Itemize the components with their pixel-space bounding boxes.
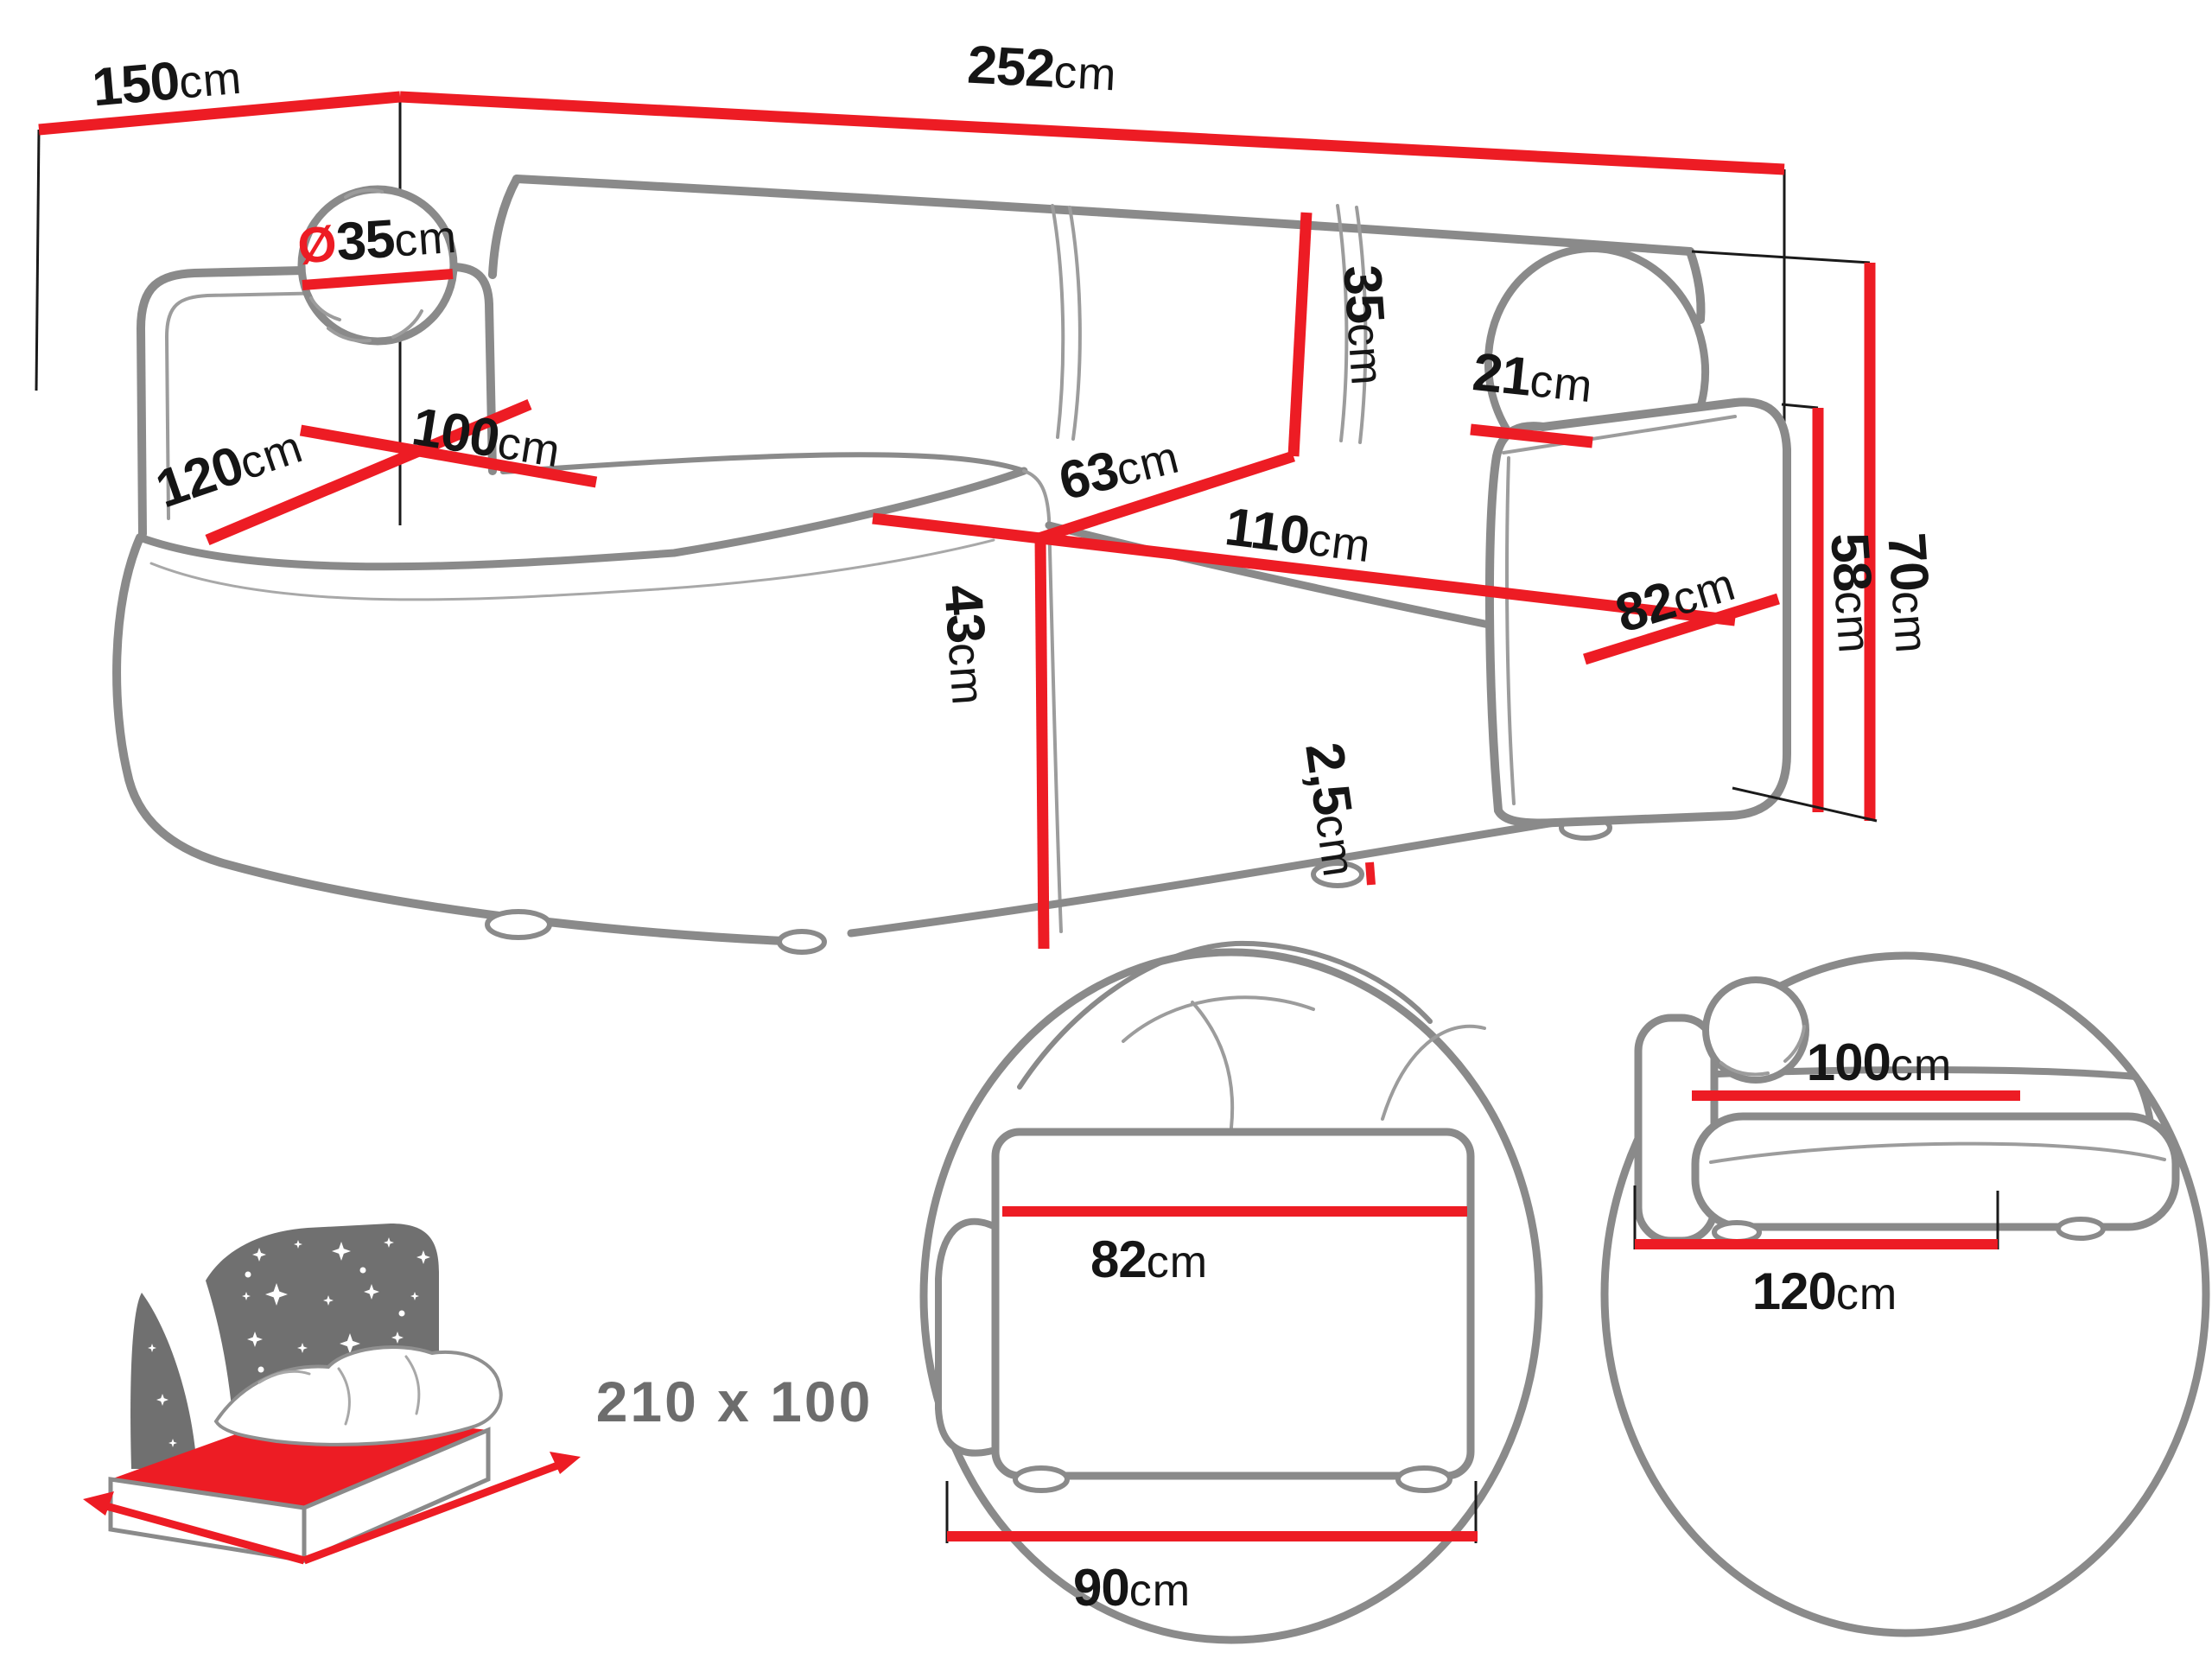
detail-side-ghost-1 [1020,944,1430,1087]
backrest-left-end [493,179,517,275]
sofa-foot-2 [779,931,824,952]
backrest-bottom-seam [503,454,1024,472]
starry-headboard-swoosh [130,1293,197,1469]
detail-side-label-82: 82cm [1090,1230,1208,1288]
backrest-cushion-seam-left-b [1070,207,1080,439]
dim-label-70: 70cm [1876,531,1944,656]
wall-edge-left-line [36,130,39,391]
detail-front-foot-1 [1714,1223,1759,1242]
detail-side-ghost-2 [1123,997,1313,1041]
sleeping-area-label: 210 x 100 [596,1370,874,1433]
detail-front-foot-2 [2058,1219,2103,1238]
ref-line-70-top [1692,251,1870,263]
chaise-cushion-welt-line [151,540,994,600]
sofa-foot-1 [487,912,550,938]
dim-label-2-5: 2,5cm [1294,739,1371,880]
sleeping-area-icon: 210 x 100 [83,1224,873,1560]
detail-side-label-90: 90cm [1073,1559,1191,1617]
dim-line-2-5 [1370,862,1371,885]
ref-line-58-top [1782,404,1818,408]
detail-circle-side-view: 82cm 90cm [924,944,1539,1640]
detail-side-foot-1 [1015,1468,1067,1491]
detail-front-label-100: 100cm [1807,1033,1952,1091]
detail-circle-front-view: 100cm 120cm [1605,956,2206,1633]
dim-label-35: 35cm [1332,264,1400,388]
backrest-cushion-seam-left-a [1052,206,1063,437]
diagram-stage: 150cm 252cm Ø35cm 120cm 100cm 63cm 35cm … [0,0,2212,1659]
dim-label-100: 100cm [408,397,565,479]
detail-front-label-120: 120cm [1752,1262,1897,1320]
sofa-dimensions-diagram: 150cm 252cm Ø35cm 120cm 100cm 63cm 35cm … [0,0,2212,1659]
detail-side-foot-2 [1398,1468,1450,1491]
dim-line-43 [1040,538,1044,949]
detail-front-seat-cushion [1695,1116,2176,1227]
dim-line-35 [1294,213,1306,456]
detail-side-ghost-4 [1192,1002,1232,1128]
detail-side-seat-module [995,1132,1471,1476]
dim-line-252 [400,97,1784,169]
dim-label-43: 43cm [932,583,1001,708]
detail-front-round-pillow [1706,980,1806,1080]
backrest-top-edge [517,179,1690,251]
dim-label-252: 252cm [966,35,1118,103]
dim-label-150: 150cm [90,46,244,118]
dim-label-58: 58cm [1819,531,1887,656]
detail-side-backrest-sliver [938,1222,995,1453]
